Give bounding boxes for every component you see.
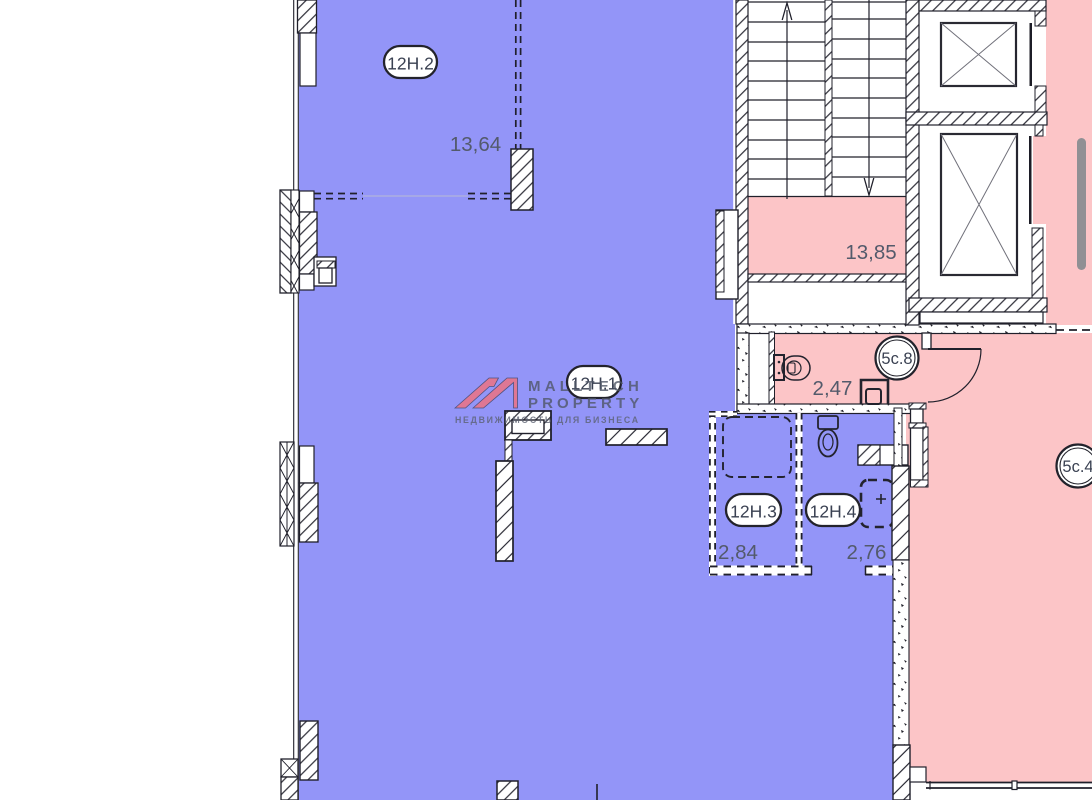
svg-text:5с.4: 5с.4 bbox=[1062, 458, 1092, 476]
svg-text:2,76: 2,76 bbox=[847, 541, 887, 564]
svg-text:НЕДВИЖИМОСТЬ ДЛЯ БИЗНЕСА: НЕДВИЖИМОСТЬ ДЛЯ БИЗНЕСА bbox=[455, 415, 640, 425]
svg-text:12Н.3: 12Н.3 bbox=[730, 502, 777, 522]
svg-text:2,47: 2,47 bbox=[813, 377, 853, 400]
svg-text:13,85: 13,85 bbox=[845, 241, 896, 264]
svg-text:2,84: 2,84 bbox=[718, 541, 758, 564]
svg-text:PROPERTY: PROPERTY bbox=[528, 395, 643, 412]
svg-text:5с.8: 5с.8 bbox=[881, 350, 912, 368]
svg-text:MALLTECH: MALLTECH bbox=[528, 378, 643, 395]
svg-text:12Н.4: 12Н.4 bbox=[810, 502, 857, 522]
svg-text:12Н.2: 12Н.2 bbox=[387, 54, 434, 74]
svg-text:13,64: 13,64 bbox=[450, 133, 501, 156]
